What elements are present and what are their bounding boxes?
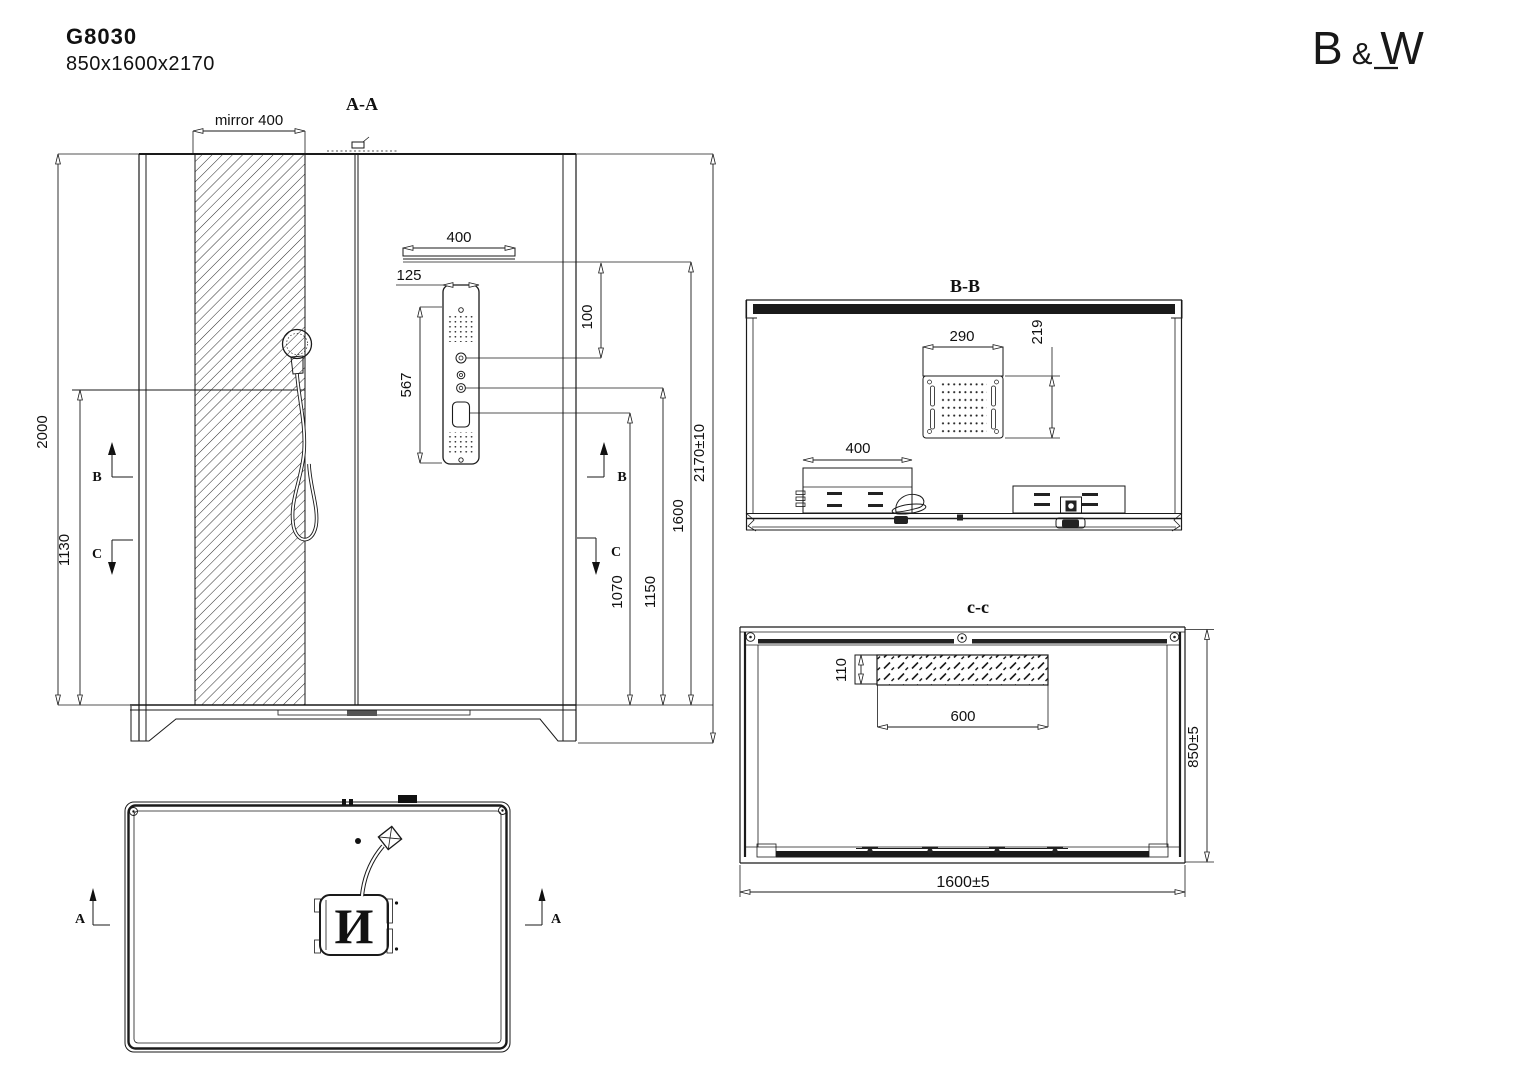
knob-3	[457, 384, 466, 393]
speaker-grid-bottom	[448, 432, 476, 456]
dim-mirror-offset: 110	[833, 658, 850, 682]
logo-letter-b: B	[1312, 22, 1345, 74]
dim-bar-height: 1600	[670, 499, 687, 532]
dim-shower-bar-width: 400	[446, 229, 471, 246]
marker-b-label: B	[617, 470, 626, 485]
dim-shelf-width: 400	[845, 440, 870, 457]
dim-display-height: 1070	[609, 575, 626, 608]
dim-mirror-width: 600	[950, 708, 975, 725]
bb-rain-head-unit	[923, 347, 1003, 438]
dim-bar-to-panel-gap: 100	[579, 304, 596, 329]
section-marker-a-right: A	[525, 888, 562, 927]
dim-cabin-depth: 850±5	[1185, 726, 1202, 768]
rain-shower-bar	[403, 248, 691, 262]
section-marker-c-right: C	[577, 538, 621, 575]
control-panel	[443, 285, 479, 464]
title-block: G8030 850x1600x2170	[66, 24, 215, 75]
display-window	[453, 402, 470, 427]
marker-b-label: B	[92, 470, 101, 485]
cc-top-rail-right	[972, 639, 1167, 644]
section-marker-c-left: C	[92, 540, 133, 575]
cc-bottom-rail	[776, 851, 1149, 858]
dim-panel-top-offset: 125	[396, 267, 421, 284]
plan-wall-tab	[398, 795, 417, 803]
dim-rain-head-width: 290	[949, 328, 974, 345]
section-marker-a-left: A	[75, 888, 110, 927]
bb-top-rail	[753, 304, 1175, 314]
drain-point	[355, 838, 361, 844]
section-cc-view: c-c 110	[740, 597, 1214, 897]
logo-text: B&W	[1312, 22, 1426, 74]
logo-ampersand: &	[1352, 36, 1375, 71]
mirror-width-label: mirror 400	[215, 112, 283, 129]
shower-tray	[130, 705, 576, 741]
dim-cabin-height: 2000	[34, 415, 51, 448]
marker-c-label: C	[611, 545, 621, 560]
cc-mirror	[855, 655, 1048, 685]
steam-pipe	[362, 846, 383, 896]
dim-rain-head-depth: 219	[1029, 319, 1046, 344]
bb-shelf-unit	[796, 468, 912, 513]
section-bb-view: B-B 290	[746, 276, 1182, 531]
section-marker-b-left: B	[92, 442, 133, 485]
speaker-grid-top	[448, 316, 476, 342]
steam-unit-label: И	[335, 898, 374, 954]
steam-generator-box: И	[315, 895, 399, 955]
section-marker-b-right: B	[587, 442, 627, 485]
section-bb-label: B-B	[950, 276, 980, 296]
marker-a-label: A	[551, 912, 562, 927]
marker-a-label: A	[75, 912, 86, 927]
dim-overall-height: 2170±10	[691, 424, 708, 482]
front-view: A-A mirror 400	[34, 94, 713, 743]
dim-panel-height: 567	[398, 372, 415, 397]
mirror-panel-hatched	[195, 154, 305, 705]
section-cc-label: c-c	[967, 597, 989, 617]
dim-knob-height: 1150	[642, 576, 659, 608]
plan-view: И A A	[75, 795, 562, 1052]
front-view-label: A-A	[346, 94, 378, 114]
logo-letter-w: W	[1380, 22, 1425, 74]
dim-lower-zone-height: 1130	[56, 534, 73, 566]
dim-cabin-width: 1600±5	[936, 874, 989, 891]
overall-size: 850x1600x2170	[66, 53, 215, 75]
water-inlet-fitting	[352, 142, 364, 148]
cc-top-rail-left	[758, 639, 954, 644]
bb-hand-shower-holder	[892, 494, 927, 524]
knob-2	[457, 371, 465, 379]
knob-1	[456, 353, 466, 363]
model-number: G8030	[66, 24, 137, 49]
brand-logo: B&W	[1312, 22, 1426, 74]
bb-drain-unit	[1013, 486, 1125, 528]
marker-c-label: C	[92, 547, 102, 562]
rain-head-nozzles	[939, 380, 987, 433]
technical-drawing-page: G8030 850x1600x2170 B&W A-A mirror 400	[0, 0, 1536, 1086]
drawing-canvas: G8030 850x1600x2170 B&W A-A mirror 400	[0, 0, 1536, 1086]
